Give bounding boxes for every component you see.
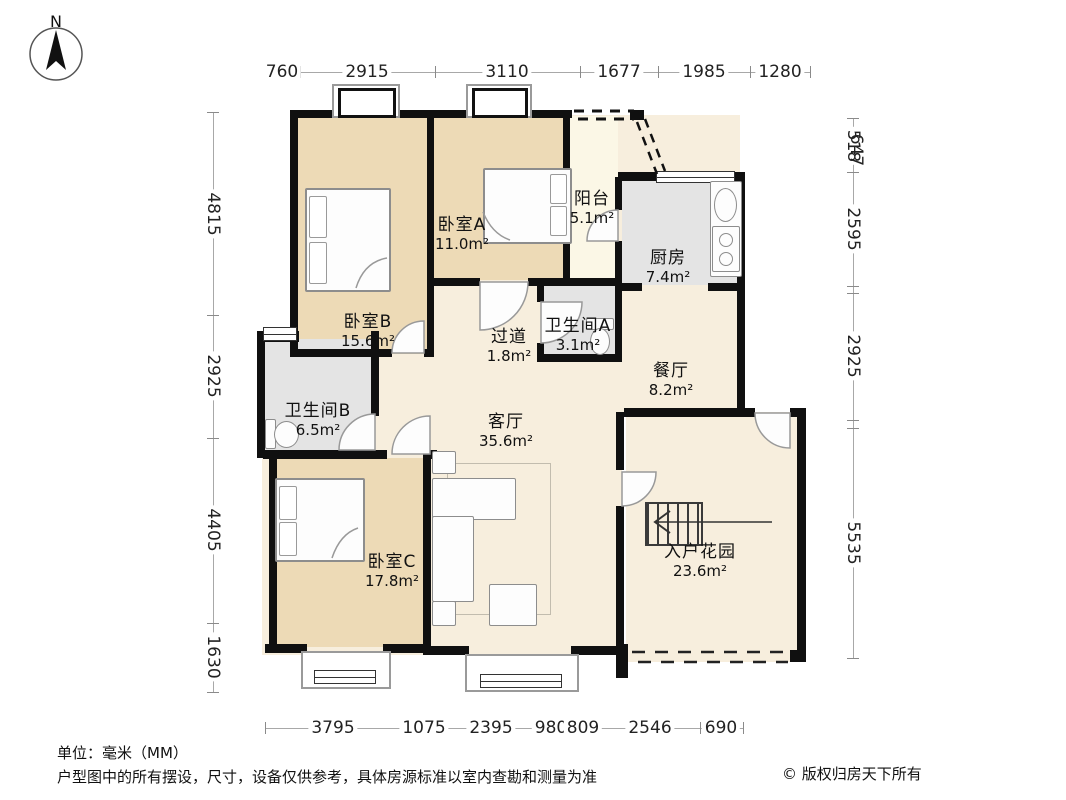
wall-segment [630,110,644,120]
dim-top-4: 1985 [679,62,728,82]
wall-segment [615,241,622,362]
dim-bottom-1: 1075 [399,718,448,738]
tick [847,293,859,294]
room-label-living: 客厅 35.6m² [479,407,533,450]
armchair-icon [489,584,537,626]
wall-segment [615,283,642,291]
wall-segment [434,278,480,286]
pillow-icon [550,206,567,236]
room-label-entry-garden: 入户花园 23.6m² [664,537,736,580]
wall-segment [624,408,739,417]
wall-segment [263,450,387,459]
bay-window-glass [338,88,396,118]
wall-segment [615,177,622,210]
dim-bottom-5: 2546 [625,718,674,738]
tick [750,66,751,78]
sofa-icon [432,516,474,602]
pillow-icon [279,522,297,556]
tick [435,66,436,78]
bay-window-glass [314,670,376,684]
bay-window-glass [480,674,562,688]
disclaimer-note: 户型图中的所有摆设，尺寸，设备仅供参考，具体房源标准以室内查勘和测量为准 [57,766,597,787]
wall-segment [424,349,434,357]
tick [658,66,659,78]
wall-segment [423,646,469,655]
tick [207,315,219,316]
tick [580,66,581,78]
pillow-icon [309,196,327,238]
dim-bottom-2: 2395 [466,718,515,738]
dim-bottom-0: 3795 [308,718,357,738]
tick [207,112,219,113]
side-table-icon [432,601,456,626]
room-label-kitchen: 厨房 7.4m² [646,243,690,286]
room-label-dining: 餐厅 8.2m² [649,356,693,399]
room-label-balcony: 阳台 5.1m² [570,184,614,227]
tick [847,658,859,659]
pillow-icon [279,486,297,520]
dim-top-2: 3110 [482,62,531,82]
burner-icon [719,252,733,266]
wall-segment [257,331,265,458]
room-label-hallway: 过道 1.8m² [487,322,531,365]
wall-segment [708,283,745,291]
tick [207,623,219,624]
pillow-icon [309,242,327,284]
tick [207,438,219,439]
compass-north-label: N [50,12,62,31]
tick [743,722,744,734]
dim-top-1: 2915 [342,62,391,82]
room-label-bedroom-b: 卧室B 15.6m² [341,307,395,350]
burner-icon [719,233,733,247]
dim-bottom-4: 809 [564,718,602,738]
room-label-bathroom-a: 卫生间A 3.1m² [545,311,612,354]
sink-icon [714,188,737,222]
sofa-icon [432,478,516,520]
tick [847,428,859,429]
dim-left-1: 2925 [203,351,223,400]
wall-segment [616,412,624,470]
dim-top-0: 760 [263,62,301,82]
unit-note: 单位：毫米（MM） [57,742,188,763]
wall-segment [537,285,544,302]
dim-left-0: 4815 [203,189,223,238]
wall-segment [616,644,628,678]
wall-segment [290,110,334,118]
wall-segment [398,110,468,118]
dim-top-3: 1677 [594,62,643,82]
tick [207,692,219,693]
dim-right-3: 2925 [843,331,863,380]
wall-segment [618,172,656,181]
pillow-icon [550,174,567,204]
floorplan-page: N 760 2915 3110 1677 1985 1280 3795 1075… [0,0,1066,800]
dim-left-2: 4405 [203,505,223,554]
dim-bottom-6: 690 [702,718,740,738]
tick [810,66,811,78]
dim-line-right [853,118,854,658]
bay-window-glass [472,88,528,118]
tick [265,722,266,734]
copyright-note: © 版权归房天下所有 [782,763,922,784]
wall-segment [423,452,431,648]
dim-right-4: 5535 [843,518,863,567]
tick [847,286,859,287]
wall-segment [616,506,624,652]
dim-left-3: 1630 [203,632,223,681]
dim-right-1: 647 [846,131,866,169]
bathroom-b-window [263,327,297,341]
wall-segment [790,650,806,662]
room-label-bathroom-b: 卫生间B 6.5m² [285,396,352,439]
room-label-bedroom-c: 卧室C 17.8m² [365,547,419,590]
tick [847,420,859,421]
wall-segment [537,354,622,362]
wall-segment [290,110,298,357]
wall-segment [427,118,434,357]
wall-segment [739,408,755,417]
wall-segment [797,408,806,658]
dim-top-5: 1280 [755,62,804,82]
tick [847,172,859,173]
room-label-bedroom-a: 卧室A 11.0m² [435,210,489,253]
tick [847,118,859,119]
side-table-icon [432,451,456,474]
dim-right-2: 2595 [843,204,863,253]
